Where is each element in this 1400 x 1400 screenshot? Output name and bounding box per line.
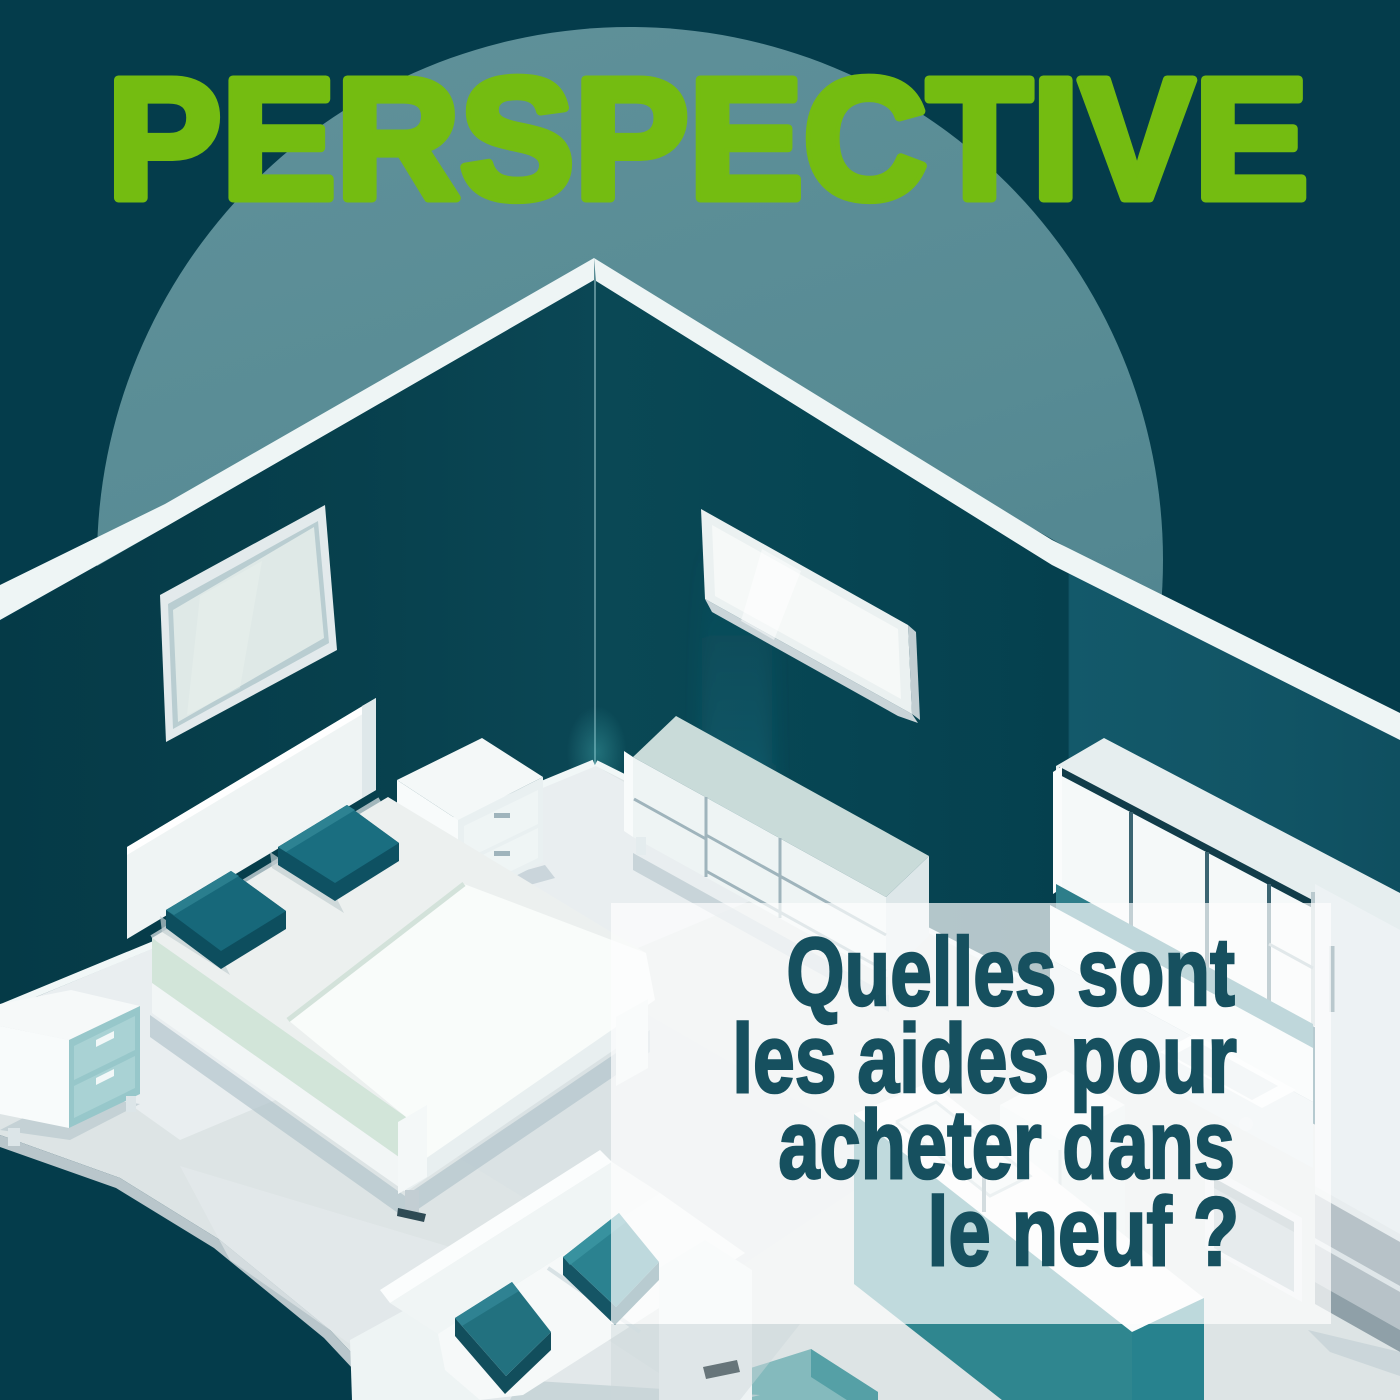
svg-text:le neuf ?: le neuf ? — [927, 1178, 1239, 1286]
svg-text:PERSPECTIVE: PERSPECTIVE — [107, 44, 1309, 235]
